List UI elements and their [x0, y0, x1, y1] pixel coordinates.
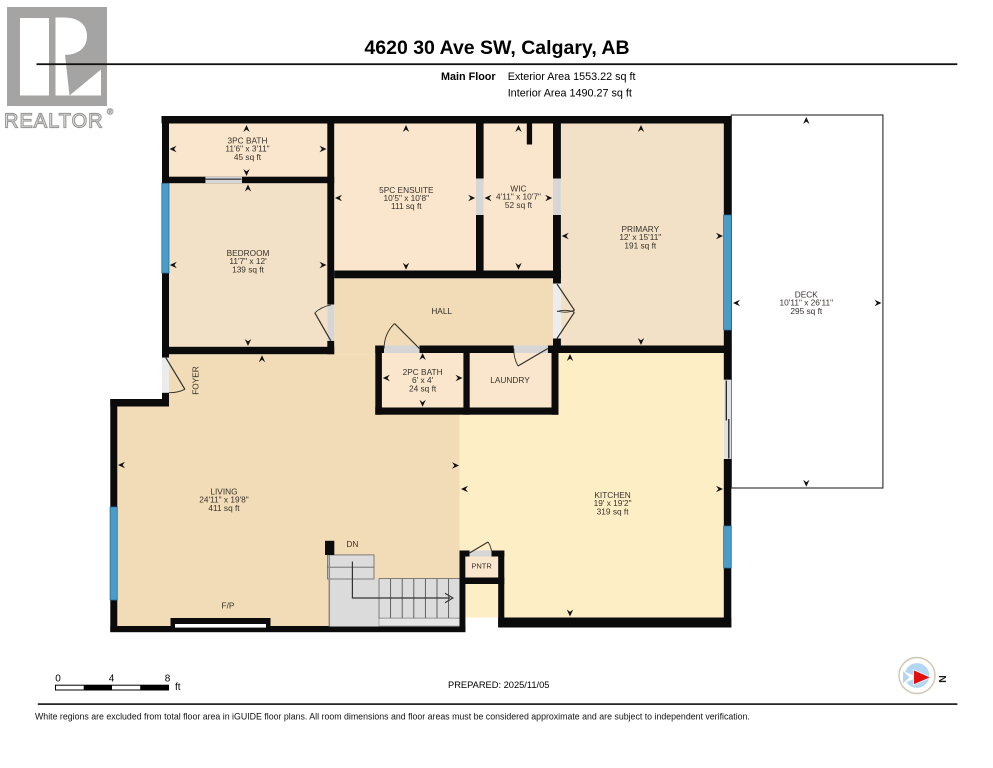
svg-text:52 sq ft: 52 sq ft: [505, 200, 533, 210]
svg-text:Exterior Area 1553.22 sq ft: Exterior Area 1553.22 sq ft: [508, 71, 636, 83]
svg-text:Main Floor: Main Floor: [441, 71, 496, 83]
svg-text:REALTOR: REALTOR: [4, 111, 104, 133]
svg-text:24 sq ft: 24 sq ft: [409, 383, 437, 393]
svg-text:PNTR: PNTR: [471, 562, 492, 571]
svg-text:®: ®: [107, 107, 114, 117]
svg-text:LAUNDRY: LAUNDRY: [490, 375, 530, 385]
svg-text:45 sq ft: 45 sq ft: [234, 152, 262, 162]
svg-text:4620 30 Ave SW, Calgary, AB: 4620 30 Ave SW, Calgary, AB: [364, 37, 629, 59]
svg-text:FOYER: FOYER: [191, 366, 201, 395]
svg-text:ft: ft: [175, 682, 181, 693]
svg-text:N: N: [936, 675, 948, 683]
svg-text:411 sq ft: 411 sq ft: [208, 503, 240, 513]
svg-text:PREPARED: 2025/11/05: PREPARED: 2025/11/05: [448, 680, 549, 690]
svg-text:139 sq ft: 139 sq ft: [232, 264, 265, 274]
svg-text:111 sq ft: 111 sq ft: [391, 201, 422, 211]
svg-text:White regions are excluded fro: White regions are excluded from total fl…: [35, 712, 750, 722]
svg-text:DN: DN: [346, 539, 358, 549]
svg-text:8: 8: [165, 674, 171, 685]
svg-text:0: 0: [55, 674, 61, 685]
svg-text:191 sq ft: 191 sq ft: [624, 240, 657, 250]
svg-text:F/P: F/P: [222, 601, 235, 611]
svg-text:295 sq ft: 295 sq ft: [790, 306, 823, 316]
svg-text:Interior Area 1490.27 sq ft: Interior Area 1490.27 sq ft: [508, 88, 632, 100]
svg-text:319 sq ft: 319 sq ft: [597, 506, 630, 516]
svg-text:4: 4: [109, 674, 115, 685]
svg-text:HALL: HALL: [431, 306, 452, 316]
